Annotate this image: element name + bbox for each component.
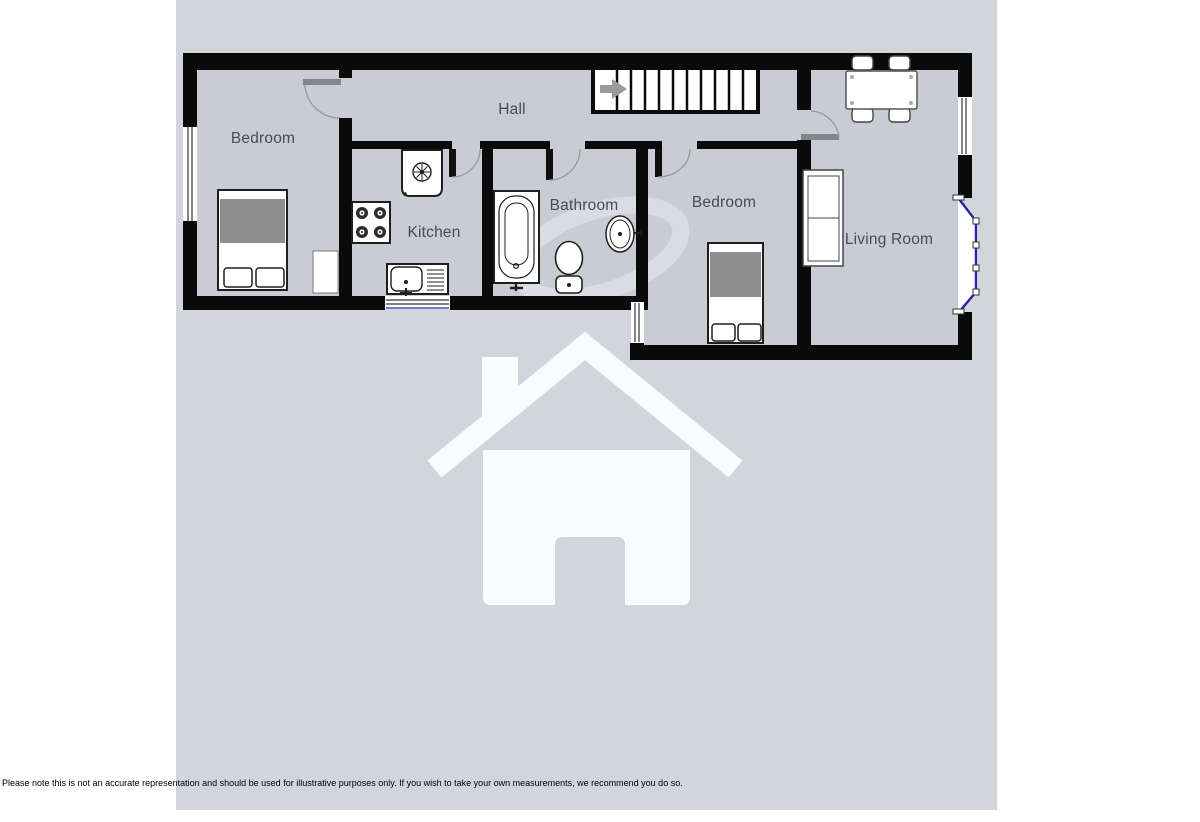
room-label-bedroom-left: Bedroom [193,130,333,148]
room-label-hall: Hall [442,101,582,119]
kitchen-sink [387,264,448,296]
floorplan-drawing [0,0,1200,822]
dining-table [846,71,917,109]
wardrobe [313,251,338,293]
room-label-bathroom: Bathroom [514,197,654,215]
room-label-kitchen: Kitchen [364,224,504,242]
window-living-room [958,97,972,155]
house-watermark-icon [443,346,727,605]
single-bed [708,243,763,343]
room-label-living-room: Living Room [819,231,959,249]
disclaimer-text: Please note this is not an accurate repr… [2,778,683,788]
window-bedroom-right [631,302,644,343]
sofa [803,170,843,266]
room-label-bedroom-right: Bedroom [654,194,794,212]
fan-icon [413,163,431,181]
stairs [593,68,758,112]
boiler [402,150,442,196]
floorplan-page: Bedroom Hall Kitchen Bathroom Bedroom Li… [0,0,1200,822]
toilet [556,242,583,294]
double-bed [218,190,287,290]
window-kitchen [385,296,450,309]
